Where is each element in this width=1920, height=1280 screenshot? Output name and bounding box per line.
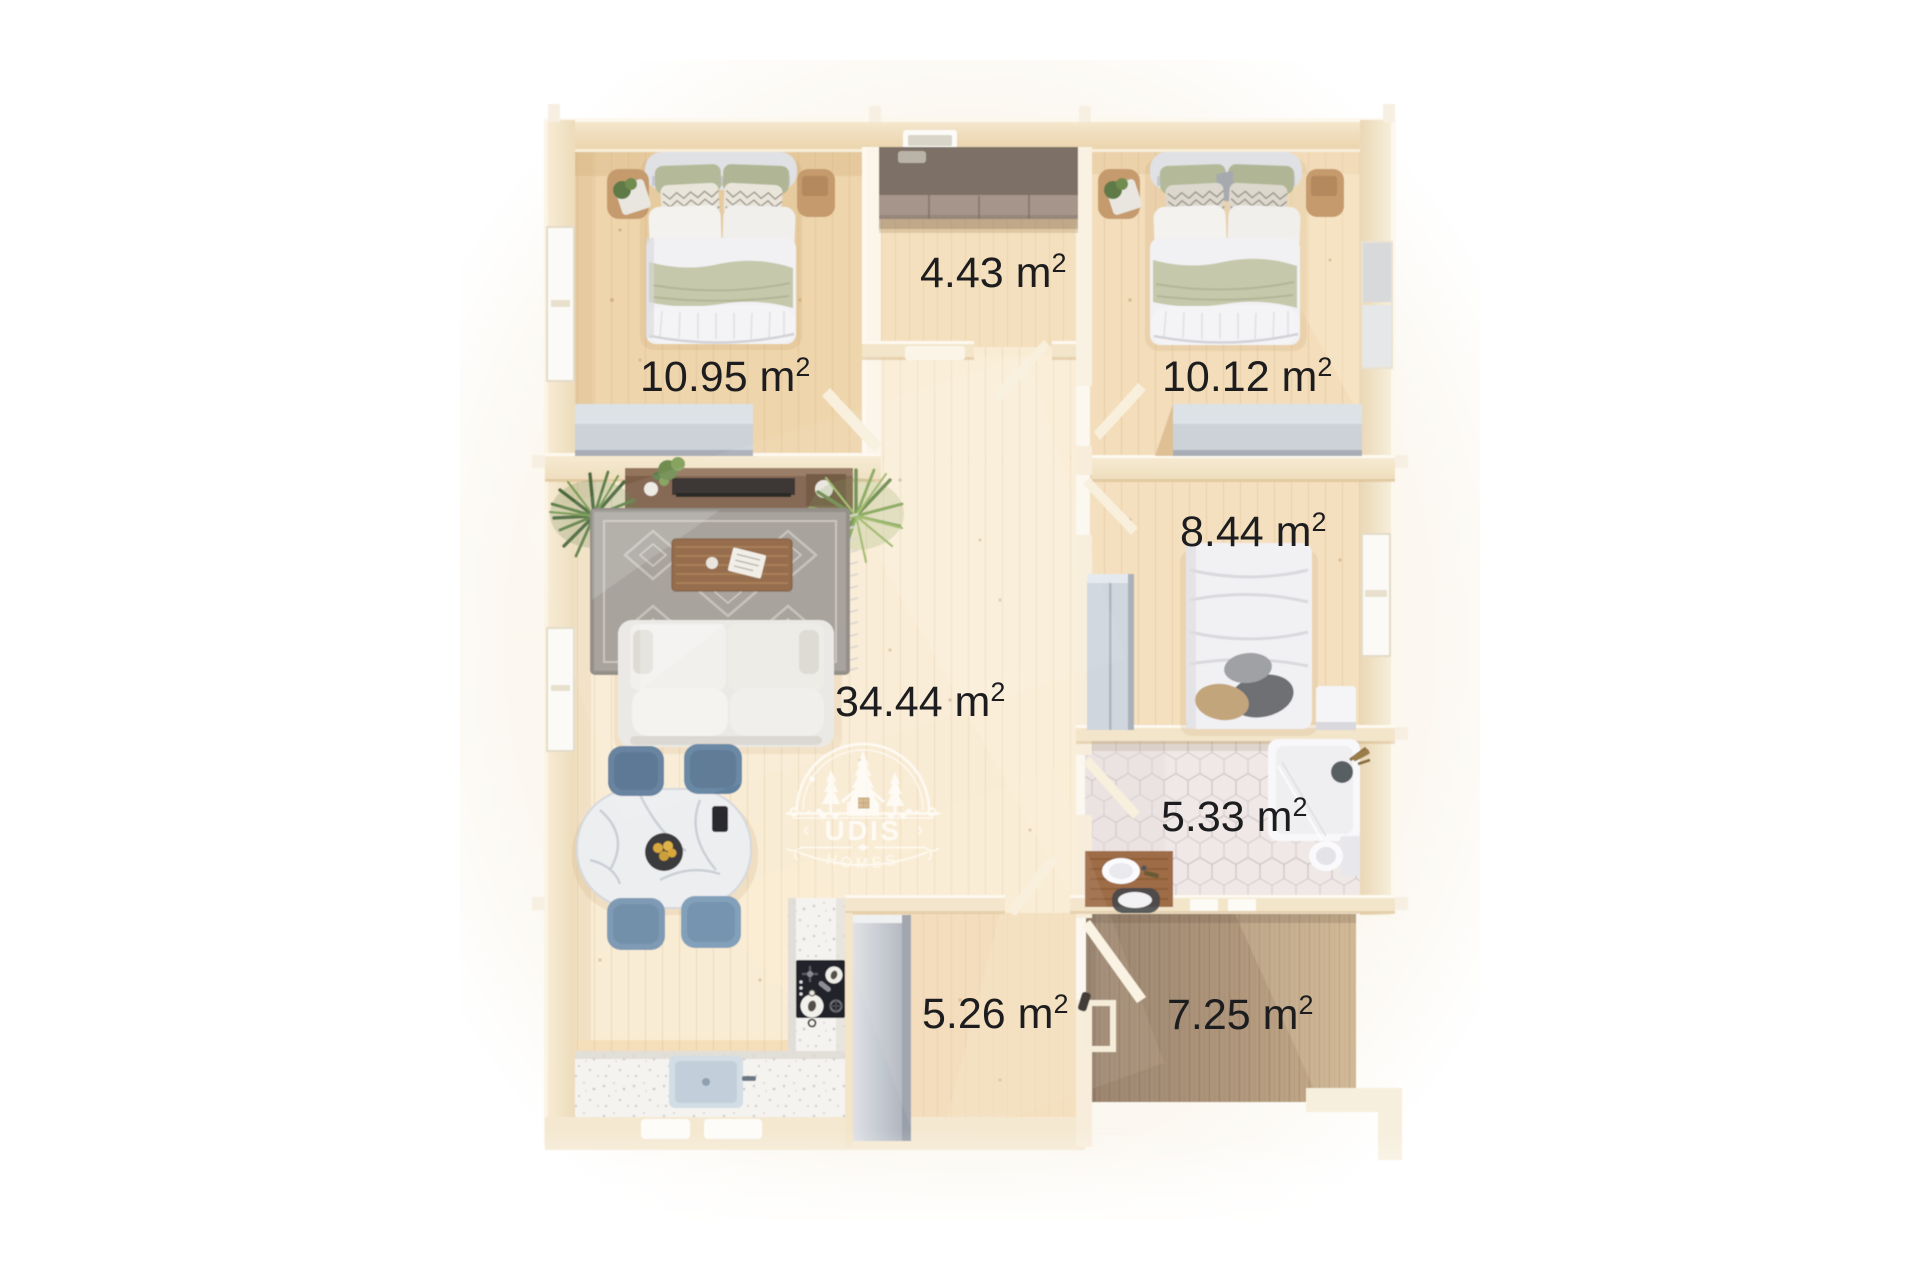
svg-text:4.43 m2: 4.43 m2 bbox=[920, 248, 1067, 297]
svg-text:5.26 m2: 5.26 m2 bbox=[922, 989, 1069, 1038]
svg-text:8.44 m2: 8.44 m2 bbox=[1180, 507, 1327, 556]
svg-text:34.44 m2: 34.44 m2 bbox=[835, 677, 1005, 726]
svg-text:UDIS: UDIS bbox=[825, 815, 902, 846]
svg-text:5.33 m2: 5.33 m2 bbox=[1161, 792, 1308, 841]
svg-text:‹: ‹ bbox=[803, 820, 809, 841]
svg-text:›: › bbox=[917, 820, 923, 841]
svg-text:10.95 m2: 10.95 m2 bbox=[640, 352, 810, 401]
svg-text:10.12 m2: 10.12 m2 bbox=[1162, 352, 1332, 401]
svg-text:7.25 m2: 7.25 m2 bbox=[1167, 990, 1314, 1039]
